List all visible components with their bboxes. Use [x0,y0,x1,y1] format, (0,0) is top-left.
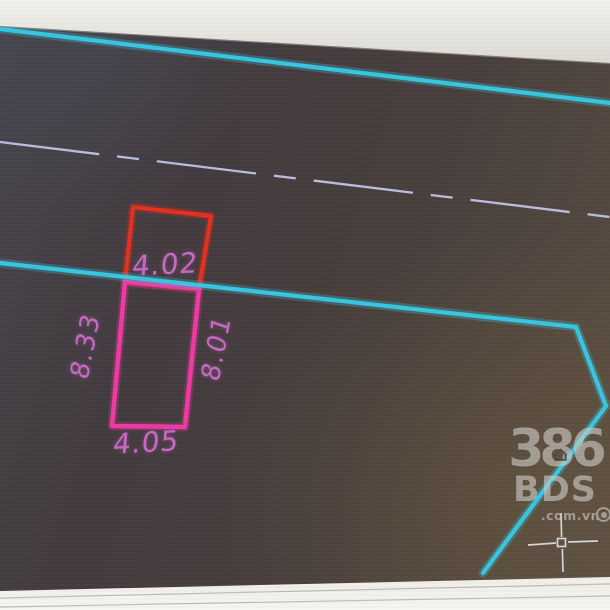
crosshair-vertical [561,513,563,572]
plot-outline [112,282,199,427]
crosshair-cursor [528,513,598,572]
crosshair-pickbox [558,539,566,547]
road-centerline-dashed [0,142,610,217]
cad-screen-photo: 4.02 8.33 8.01 4.05 386 ⌂ BDS .com.vn [0,0,610,610]
parcel-boundary-line [0,263,606,573]
dimension-label-bottom-width: 4.05 [112,424,181,461]
dimension-label-top-width: 4.02 [131,246,200,283]
cad-canvas [0,0,610,610]
crosshair-horizontal [528,541,598,545]
